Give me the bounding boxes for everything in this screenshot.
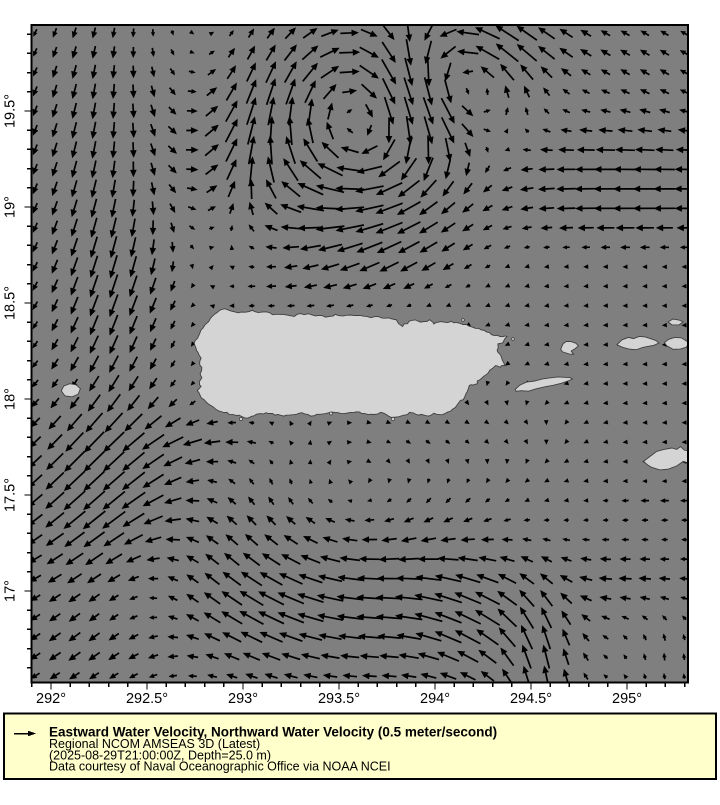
svg-text:292°: 292°	[36, 691, 66, 707]
svg-text:295°: 295°	[612, 691, 642, 707]
svg-text:Data courtesy of Naval Oceanog: Data courtesy of Naval Oceanographic Off…	[49, 759, 391, 773]
svg-text:294.5°: 294.5°	[510, 691, 552, 707]
svg-text:18°: 18°	[3, 388, 19, 410]
svg-text:19°: 19°	[3, 196, 19, 218]
svg-text:19.5°: 19.5°	[3, 94, 19, 128]
svg-text:17.5°: 17.5°	[3, 478, 19, 512]
svg-text:293°: 293°	[228, 691, 258, 707]
svg-text:294°: 294°	[420, 691, 450, 707]
svg-text:293.5°: 293.5°	[318, 691, 360, 707]
svg-text:17°: 17°	[3, 580, 19, 602]
svg-text:18.5°: 18.5°	[3, 286, 19, 320]
svg-text:292.5°: 292.5°	[126, 691, 168, 707]
